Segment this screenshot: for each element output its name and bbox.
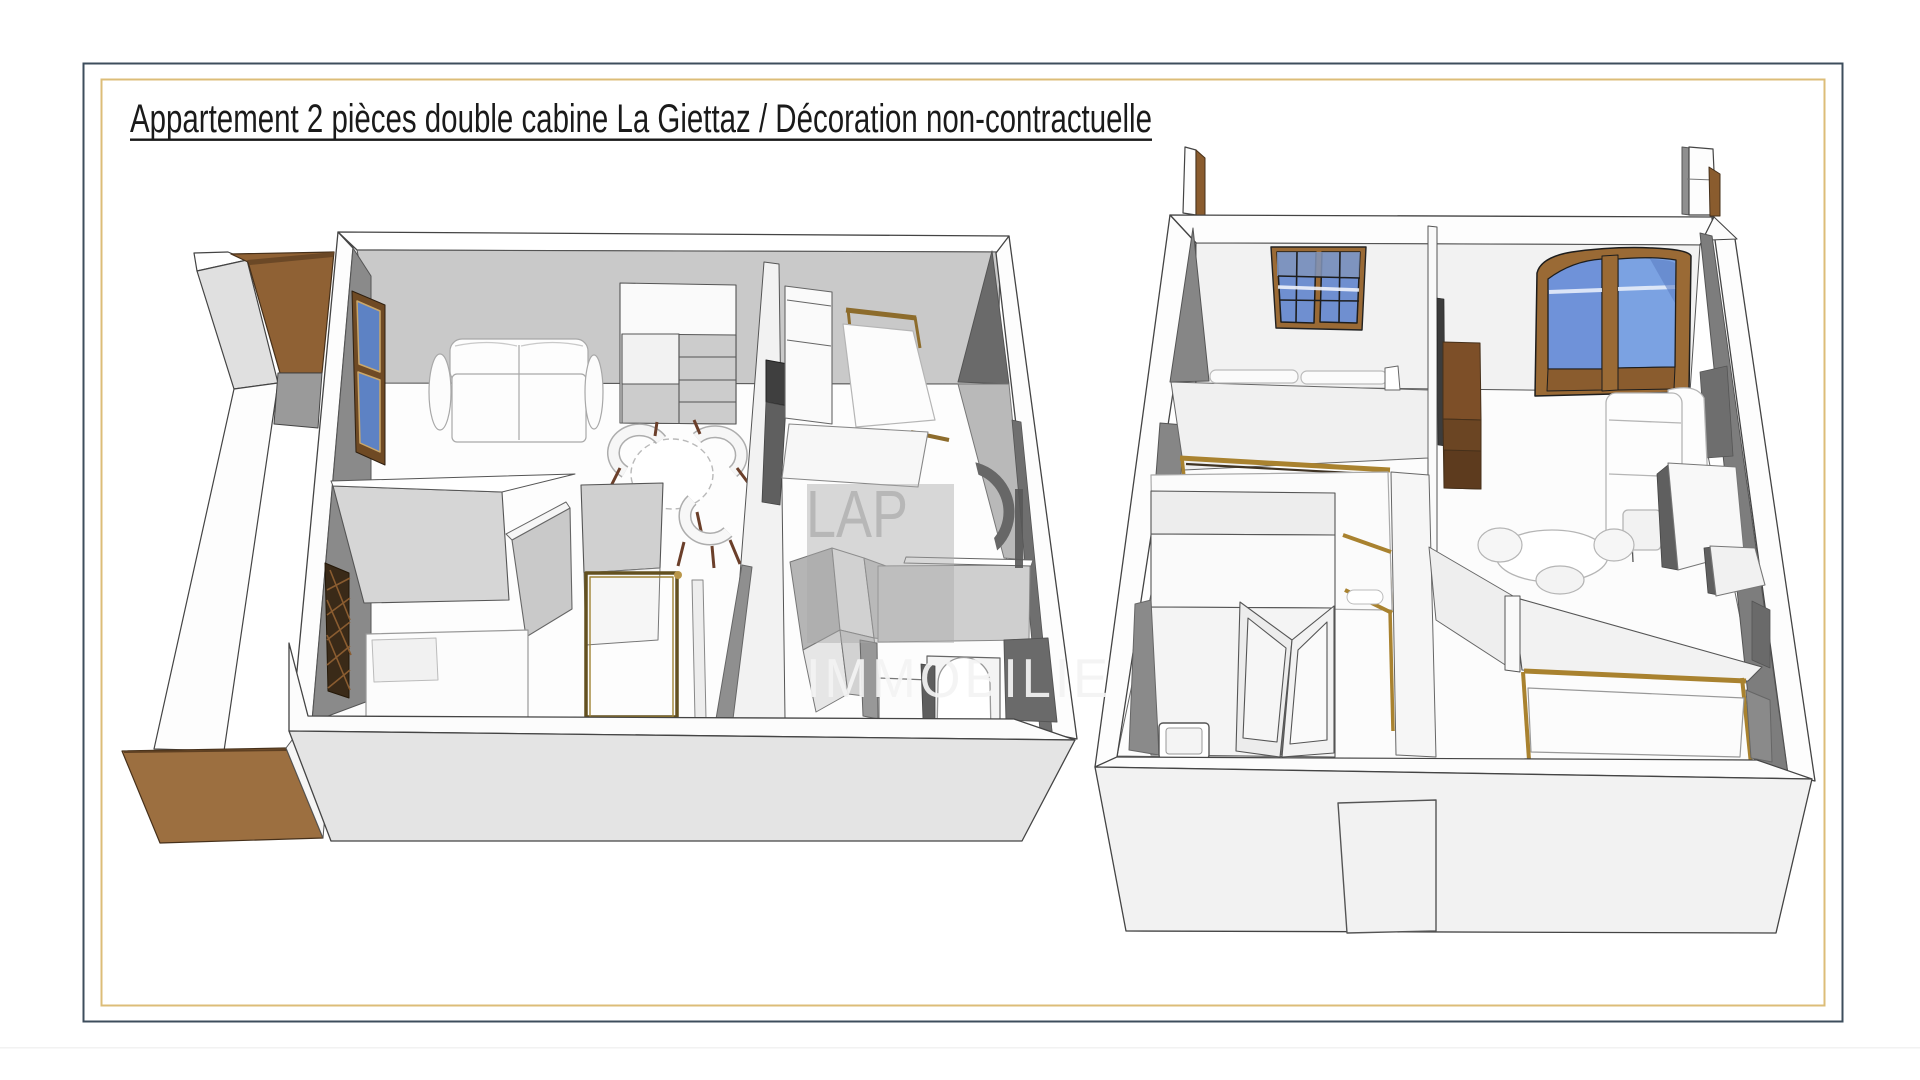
svg-text:LAP: LAP: [806, 477, 908, 552]
svg-text:IMMOBILIE: IMMOBILIE: [806, 647, 1112, 709]
svg-text:Appartement 2 pièces double ca: Appartement 2 pièces double cabine La Gi…: [130, 97, 1152, 141]
